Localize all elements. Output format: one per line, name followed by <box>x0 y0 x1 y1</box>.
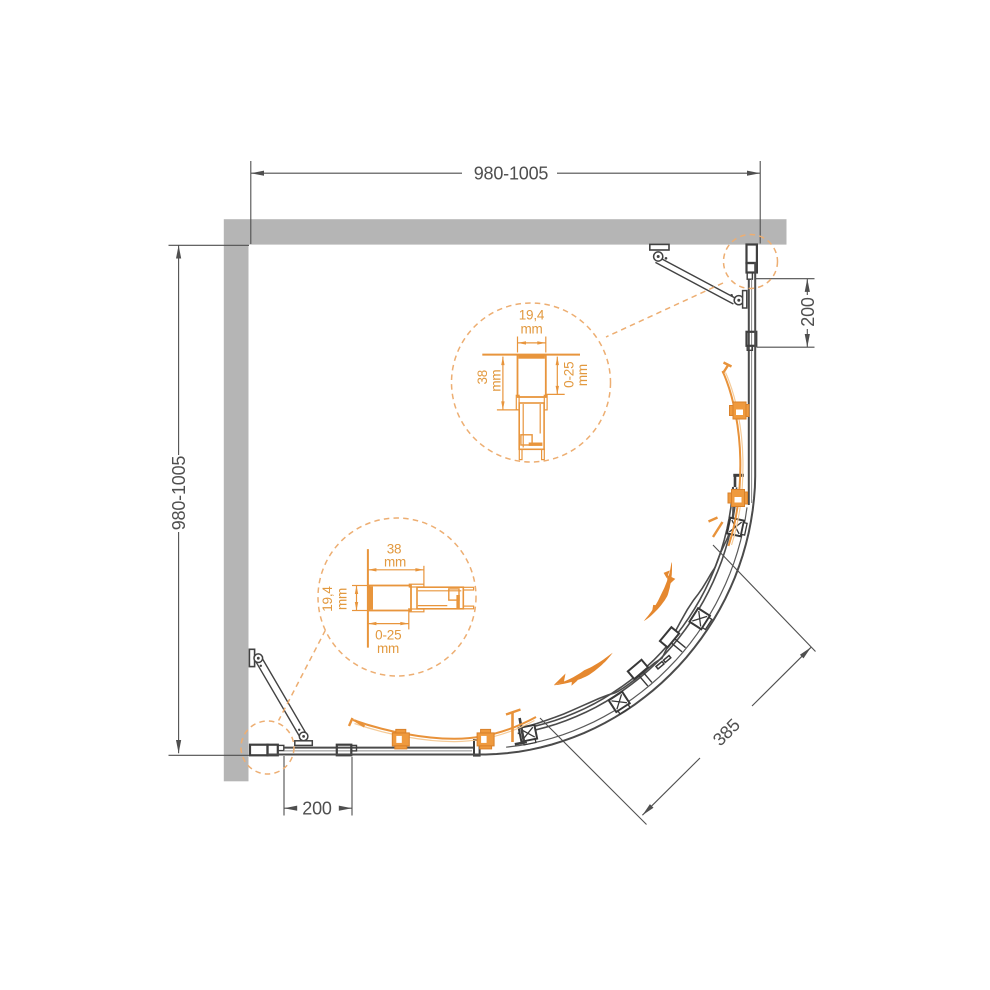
svg-text:mm: mm <box>335 588 350 610</box>
svg-text:980-1005: 980-1005 <box>474 164 549 184</box>
svg-text:mm: mm <box>384 555 406 570</box>
svg-text:19,4: 19,4 <box>320 586 335 612</box>
svg-text:mm: mm <box>377 641 399 656</box>
svg-text:mm: mm <box>489 370 504 392</box>
svg-text:mm: mm <box>575 364 590 386</box>
svg-text:200: 200 <box>798 297 818 327</box>
svg-text:200: 200 <box>302 799 332 819</box>
svg-text:19,4: 19,4 <box>519 308 545 323</box>
svg-text:38: 38 <box>475 370 490 385</box>
svg-text:980-1005: 980-1005 <box>169 456 189 531</box>
svg-text:mm: mm <box>520 322 542 337</box>
